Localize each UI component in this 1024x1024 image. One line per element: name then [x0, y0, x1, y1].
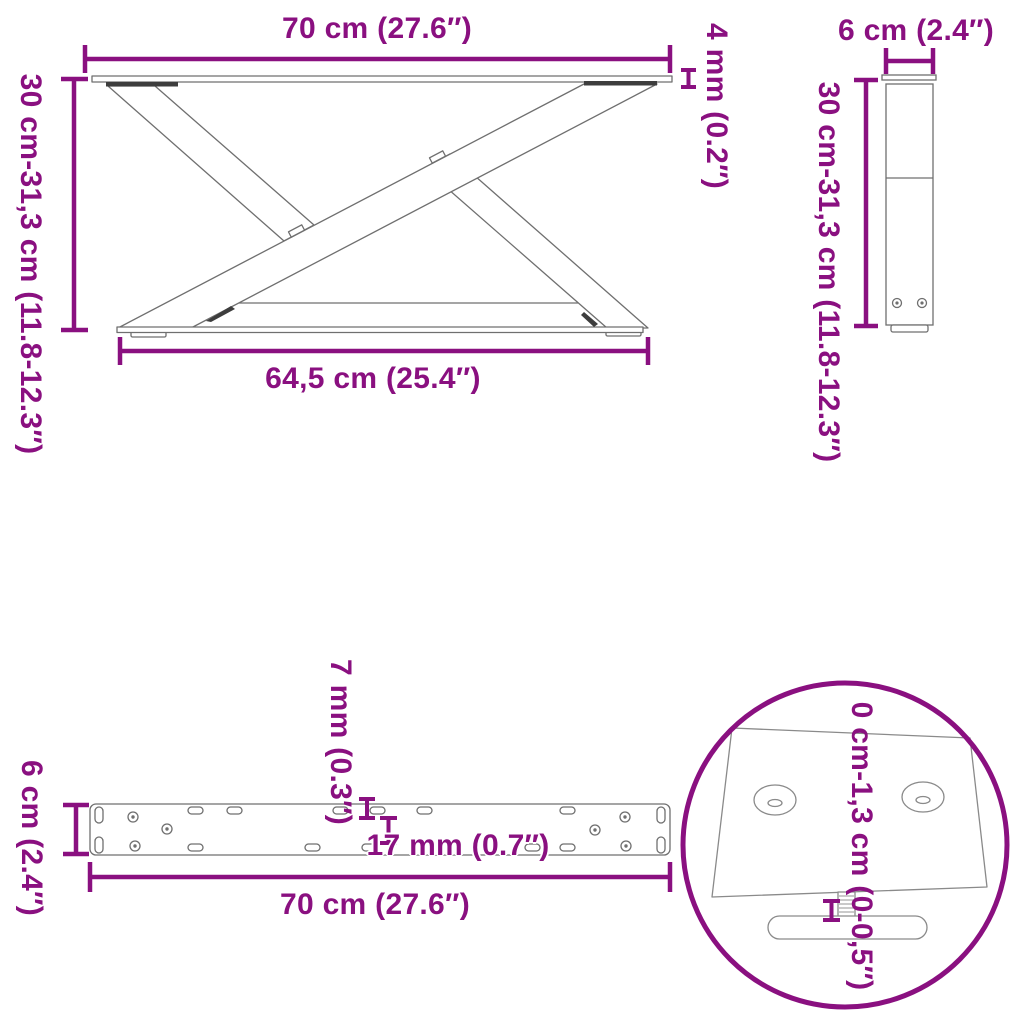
side-column: [886, 84, 933, 325]
dimension-diagram: 70 cm (27.6″) 30 cm-31,3 cm (11.8-12.3″)…: [0, 0, 1024, 1024]
dim-side-width: [886, 48, 933, 74]
detail-foot-disc: [768, 916, 927, 939]
side-foot: [891, 325, 928, 332]
detail-threaded-stem: [838, 892, 855, 918]
front-strut-upper: [108, 86, 314, 241]
front-base-plate: [117, 327, 643, 333]
detail-plate: [712, 728, 987, 897]
foot-detail-drawing: [712, 728, 987, 939]
side-view-drawing: [882, 75, 936, 332]
side-top-plate: [882, 75, 936, 80]
bottom-view-drawing: [90, 804, 670, 855]
dim-bar-width: [90, 862, 670, 892]
front-view-drawing: [92, 76, 672, 337]
dim-front-top: [85, 45, 670, 73]
dim-front-base: [120, 337, 648, 365]
dim-front-height: [61, 79, 88, 330]
dim-bar-depth: [63, 805, 89, 854]
technical-drawing: [0, 0, 1024, 1024]
dim-front-thickness-bracket: [681, 70, 696, 87]
dim-side-height: [854, 80, 878, 326]
